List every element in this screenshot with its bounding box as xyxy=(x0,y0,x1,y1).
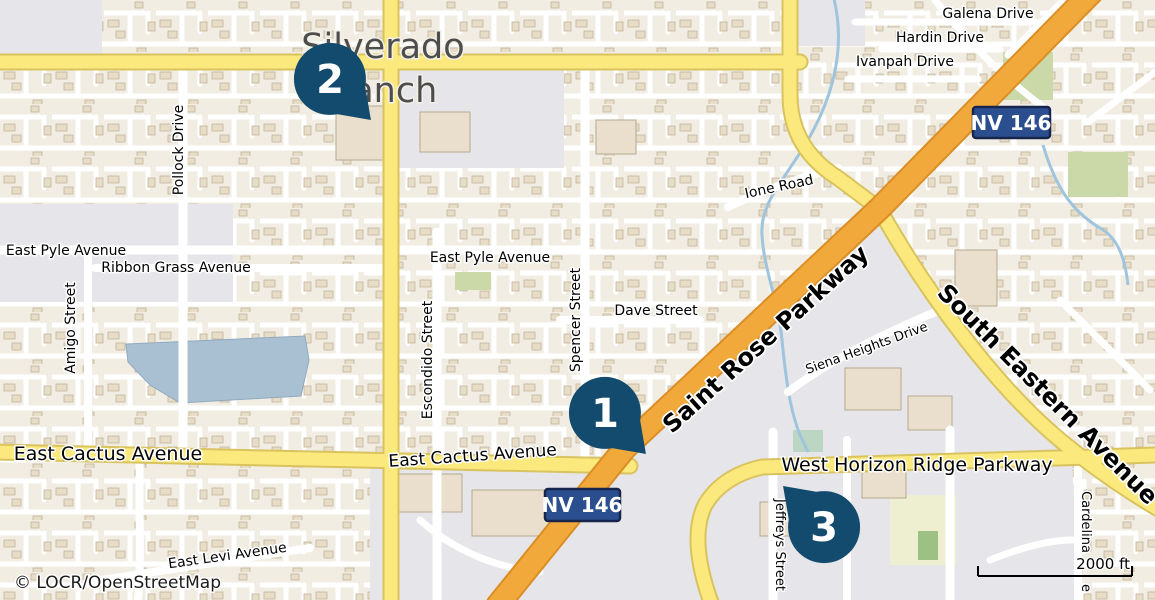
label-hardin-drive: Hardin Drive xyxy=(896,30,984,46)
label-galena-drive: Galena Drive xyxy=(942,6,1033,22)
scale-bar-label: 2000 ft xyxy=(1076,555,1130,573)
route-shield-south: NV 146 xyxy=(542,489,623,521)
osm-map[interactable]: Silverado Ranch Galena Drive Hardin Driv… xyxy=(0,0,1155,600)
map-canvas[interactable]: Silverado Ranch Galena Drive Hardin Driv… xyxy=(0,0,1155,600)
label-pollock-drive: Pollock Drive xyxy=(171,105,187,195)
label-spencer-street: Spencer Street xyxy=(568,267,584,372)
label-east-cactus-w: East Cactus Avenue xyxy=(14,443,202,465)
label-ribbon-grass: Ribbon Grass Avenue xyxy=(101,260,251,276)
label-amigo-street: Amigo Street xyxy=(63,282,79,374)
marker-2-number: 2 xyxy=(316,57,344,103)
route-shield-north: NV 146 xyxy=(971,107,1052,138)
label-cardelina-tail: e xyxy=(1078,584,1093,592)
label-ivanpah-drive: Ivanpah Drive xyxy=(856,54,954,70)
label-cardelina: Cardelina xyxy=(1078,491,1093,553)
label-escondido-street: Escondido Street xyxy=(420,300,436,419)
label-horizon-ridge: West Horizon Ridge Parkway xyxy=(781,454,1052,476)
label-jeffreys-street: Jeffreys Street xyxy=(772,498,787,591)
route-shield-north-text: NV 146 xyxy=(971,111,1052,135)
label-dave-street: Dave Street xyxy=(614,303,698,319)
marker-1-number: 1 xyxy=(591,391,619,437)
marker-3-number: 3 xyxy=(810,505,838,551)
route-shield-south-text: NV 146 xyxy=(542,493,623,517)
attribution: © LOCR/OpenStreetMap xyxy=(14,573,221,593)
label-east-pyle-e: East Pyle Avenue xyxy=(430,250,550,266)
label-east-pyle-w: East Pyle Avenue xyxy=(6,243,126,259)
